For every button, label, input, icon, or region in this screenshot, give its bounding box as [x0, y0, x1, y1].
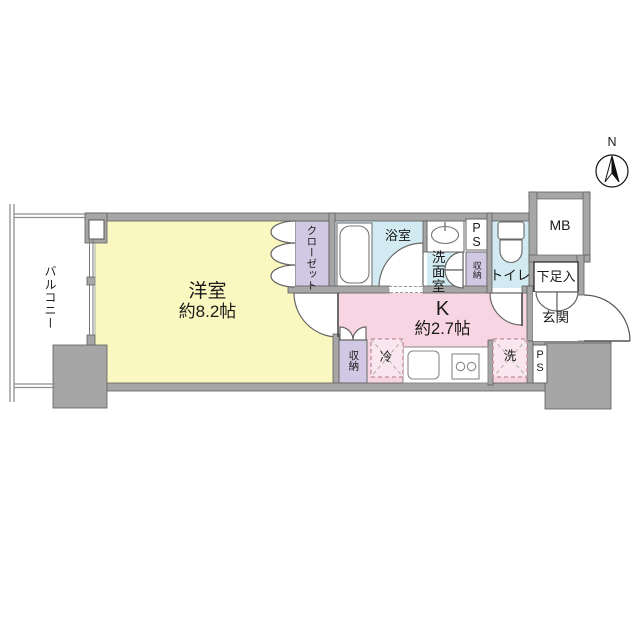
- entrance-door-icon: [584, 295, 630, 341]
- washer-space-label: 洗: [493, 350, 527, 364]
- pillar-bottom-right: [545, 343, 611, 409]
- wall-closet-bath: [329, 213, 335, 293]
- western-room-size: 約8.2帖: [150, 303, 265, 321]
- pipe-space-bottom-label: P S: [533, 349, 547, 375]
- washroom-label: 洗面室: [429, 250, 444, 294]
- wall-bath-wash: [423, 221, 427, 252]
- balcony-label: バルコニー: [43, 265, 56, 330]
- wall-window-mullion: [87, 277, 95, 285]
- toilet-icon: [498, 222, 524, 263]
- wall-western-kitchen: [333, 334, 339, 385]
- wall-bottom: [87, 383, 547, 391]
- toilet-label: トイレ: [489, 269, 531, 284]
- window-glazing: [90, 239, 96, 335]
- refrigerator-space-label: 冷: [372, 351, 400, 365]
- corner-pipe-box: [89, 220, 104, 239]
- compass-icon: [596, 155, 628, 187]
- counter-sink-icon: [408, 351, 439, 379]
- storage-kitchen-label: 収納: [347, 350, 358, 371]
- stove-icon: [452, 354, 479, 379]
- bathroom-label: 浴室: [376, 229, 420, 243]
- pipe-space-top-label: P S: [466, 221, 487, 249]
- storage-washroom-label: 収納: [471, 261, 481, 279]
- pillar-bottom-left: [53, 345, 107, 408]
- bathtub-icon: [337, 223, 372, 286]
- closet-folding-doors-icon: [271, 221, 295, 287]
- western-room-label: 洋室: [150, 282, 265, 303]
- wall-mb-top: [529, 192, 590, 199]
- wall-kitchen-top-left: [288, 286, 390, 293]
- kitchen-size: 約2.7帖: [385, 321, 500, 339]
- kitchen-label: K: [385, 299, 500, 321]
- compass-north-label: N: [602, 136, 622, 150]
- closet-label: クローゼット: [305, 225, 316, 291]
- entrance-label: 玄関: [533, 311, 578, 326]
- wall-mb-right: [583, 192, 590, 262]
- meter-box-label: MB: [537, 218, 583, 233]
- shoe-cabinet-label: 下足入: [534, 270, 578, 284]
- floor-plan: N バルコニー 洋室 約8.2帖 クローゼット 浴室 洗面室 P S 収納 トイ…: [0, 0, 640, 640]
- wall-opening-dashed: [389, 287, 423, 293]
